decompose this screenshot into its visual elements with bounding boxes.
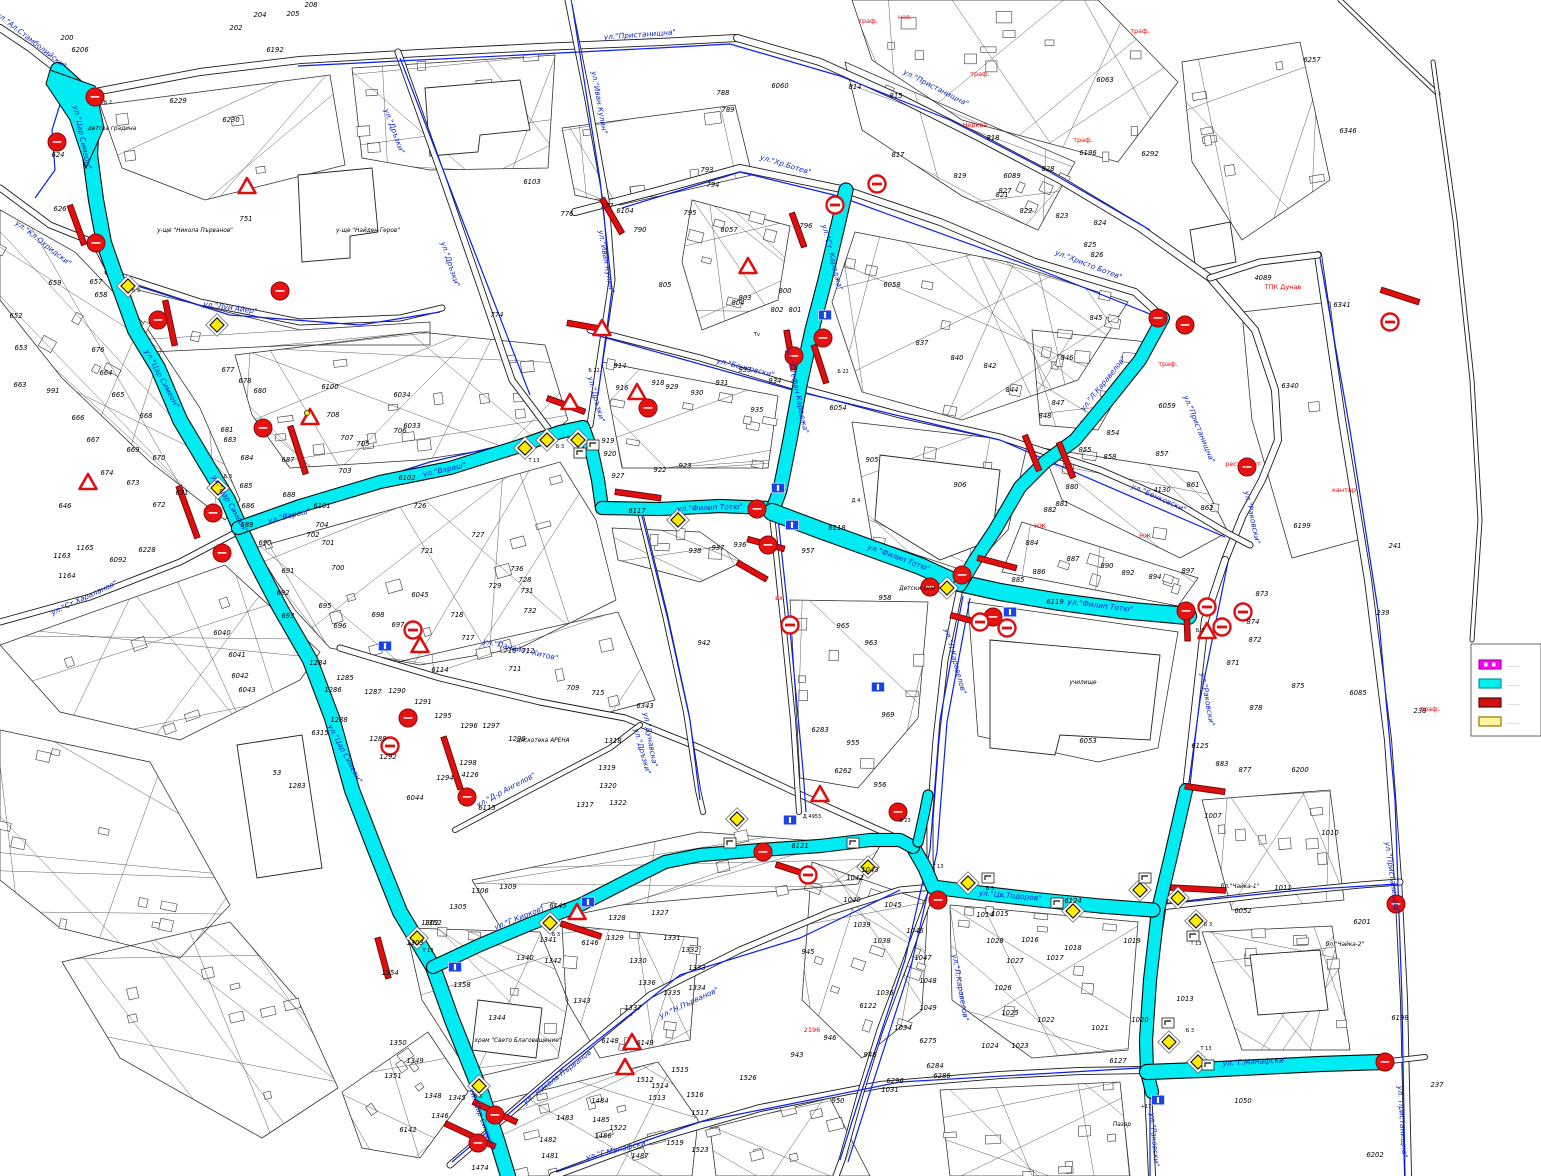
- parcel-number-label: 1513: [648, 1094, 665, 1102]
- parcel-number-label: 1011: [1274, 884, 1291, 892]
- red-circle-marker[interactable]: [149, 311, 167, 329]
- parcel-number-label: 6142: [399, 1126, 416, 1134]
- parcel-number-label: 969: [882, 711, 895, 719]
- yield-triangle-marker[interactable]: [617, 1059, 634, 1074]
- parcel-number-label: 1046: [906, 927, 924, 935]
- parcel-number-label: 796: [800, 222, 814, 230]
- parcel-number-label: 1351: [384, 1072, 401, 1080]
- parcel-number-label: 696: [334, 622, 348, 630]
- parcel-number-label: 958: [879, 594, 893, 602]
- parcel-number-label: 1013: [1176, 995, 1193, 1003]
- parcel-number-label: 1286: [324, 686, 342, 694]
- parcel-number-label: 707: [341, 434, 355, 442]
- parcel-number-label: 237: [1431, 1081, 1445, 1089]
- parcel-number-label: 736: [511, 565, 525, 573]
- parcel-number-label: 721: [421, 547, 434, 555]
- parcel-number-label: 1327: [651, 909, 669, 917]
- place-name-label: Детски дом: [898, 586, 935, 592]
- parcel-number-label: 817: [892, 151, 906, 159]
- road-closure-bar-marker[interactable]: [1380, 287, 1420, 305]
- parcel-number-label: 6122: [859, 1002, 876, 1010]
- traffic-sign-plate[interactable]: [1051, 898, 1063, 908]
- parcel-number-label: 6040: [213, 629, 230, 637]
- parcel-number-label: 927: [612, 472, 626, 480]
- parcel-number-label: 919: [602, 437, 615, 445]
- parcel-number-label: 1342: [544, 957, 561, 965]
- parcel-number-label: 751: [240, 215, 253, 223]
- traffic-sign-plate[interactable]: [587, 440, 599, 450]
- parcel-number-label: 1354: [381, 969, 398, 977]
- parcel-number-label: 1043: [861, 866, 878, 874]
- no-entry-sign-marker[interactable]: [1382, 314, 1399, 331]
- parcel-number-label: 717: [462, 634, 476, 642]
- parcel-number-label: 1042: [846, 874, 863, 882]
- red-circle-marker[interactable]: [87, 234, 105, 252]
- parcel-number-label: 6283: [811, 726, 828, 734]
- parcel-number-label: 718: [451, 611, 465, 619]
- parcel-number-label: 6202: [1366, 1151, 1383, 1159]
- street-name-label: ул."Ал.Стамболийски": [0, 9, 68, 70]
- traffic-sign-plate[interactable]: [1187, 931, 1199, 941]
- parcel-number-label: 1483: [556, 1114, 573, 1122]
- sign-caption-label: Б 3: [1204, 922, 1212, 928]
- red-circle-marker[interactable]: [1149, 309, 1167, 327]
- parcel-number-label: 823: [1056, 212, 1069, 220]
- traffic-sign-plate[interactable]: [1139, 873, 1151, 883]
- parcel-number-label: 1345: [448, 1094, 465, 1102]
- red-circle-marker[interactable]: [748, 500, 766, 518]
- parcel-number-label: 6124: [1064, 897, 1081, 905]
- parcel-number-label: 711: [509, 665, 522, 673]
- sign-caption-label: Т 13: [421, 948, 433, 954]
- parcel-number-label: 697: [392, 621, 406, 629]
- road-closure-bar-marker[interactable]: [977, 555, 1017, 571]
- parcel-number-label: 1317: [576, 801, 594, 809]
- parcel-number-label: 693: [282, 612, 295, 620]
- red-circle-marker[interactable]: [639, 399, 657, 417]
- red-annotation-label: НЖ: [1139, 532, 1151, 540]
- parcel-number-label: 1020: [1131, 1016, 1148, 1024]
- no-entry-sign-marker[interactable]: [827, 197, 844, 214]
- road-closure-bar-marker[interactable]: [560, 921, 602, 939]
- parcel-number-label: 790: [634, 226, 647, 234]
- priority-road-diamond-marker[interactable]: [1158, 1031, 1181, 1054]
- red-circle-marker[interactable]: [254, 419, 272, 437]
- street-name-label: ул."Л.Каравелов": [950, 952, 971, 1021]
- legend-swatch: [1479, 679, 1501, 688]
- red-annotation-label: траф.: [1158, 360, 1178, 368]
- red-circle-marker[interactable]: [271, 282, 289, 300]
- parcel-number-label: 1331: [663, 934, 680, 942]
- parcel-number-label: 922: [654, 466, 667, 474]
- parcel-number-label: 943: [791, 1051, 804, 1059]
- parcel-number-label: 685: [240, 482, 253, 490]
- legend-swatch: [1479, 660, 1501, 669]
- parcel-number-label: 837: [916, 339, 930, 347]
- parcel-number-label: 848: [1039, 412, 1053, 420]
- parcel-number-label: 6103: [523, 178, 540, 186]
- parcel-number-label: 6063: [1096, 76, 1113, 84]
- info-sign-blue-marker[interactable]: [582, 897, 595, 907]
- parcel-number-label: 1163: [53, 552, 70, 560]
- parcel-number-label: 6257: [1303, 56, 1321, 64]
- parcel-number-label: 6058: [883, 281, 901, 289]
- parcel-number-label: 701: [322, 539, 335, 547]
- parcel-number-label: 1333: [688, 964, 705, 972]
- parcel-number-label: 805: [659, 281, 672, 289]
- parcel-number-label: 666: [72, 414, 86, 422]
- priority-road-diamond-marker[interactable]: [726, 808, 749, 831]
- parcel-number-label: 1298: [459, 759, 477, 767]
- red-circle-marker[interactable]: [48, 133, 66, 151]
- yield-triangle-marker[interactable]: [740, 258, 757, 273]
- red-circle-marker[interactable]: [929, 891, 947, 909]
- parcel-number-label: 819: [954, 172, 967, 180]
- parcel-number-label: 6148: [601, 1037, 619, 1045]
- parcel-number-label: 1474: [471, 1164, 488, 1172]
- parcel-number-label: 665: [112, 391, 125, 399]
- parcel-number-label: 6262: [834, 767, 851, 775]
- parcel-number-label: 6341: [1333, 301, 1350, 309]
- parcel-number-label: 1328: [608, 914, 626, 922]
- parcel-number-label: 667: [87, 436, 101, 444]
- parcel-number-label: 1007: [1204, 812, 1222, 820]
- parcel-number-label: 6199: [1293, 522, 1310, 530]
- parcel-number-label: 1028: [986, 937, 1004, 945]
- parcel-number-label: 1284: [309, 659, 326, 667]
- parcel-number-label: 1306: [471, 887, 489, 895]
- place-name-label: дискотека АРЕНА: [515, 738, 569, 744]
- traffic-sign-plate[interactable]: [724, 838, 736, 848]
- parcel-number-label: 1016: [1021, 936, 1039, 944]
- parcel-number-label: 1021: [1091, 1024, 1108, 1032]
- legend-item-label: .........: [1507, 664, 1520, 669]
- parcel-number-label: 6052: [1234, 907, 1251, 915]
- traffic-sign-plate[interactable]: [1162, 1018, 1174, 1028]
- info-sign-blue-marker[interactable]: [1004, 607, 1017, 617]
- no-entry-sign-marker[interactable]: [800, 867, 817, 884]
- red-circle-marker[interactable]: [754, 843, 772, 861]
- parcel-number-label: 1519: [666, 1139, 683, 1147]
- parcel-number-label: 6118: [828, 524, 846, 532]
- info-sign-blue-marker[interactable]: [784, 815, 797, 825]
- yield-triangle-marker[interactable]: [812, 786, 829, 801]
- parcel-number-label: 1024: [981, 1042, 998, 1050]
- parcel-number-label: 704: [316, 521, 329, 529]
- parcel-number-label: 6196: [1079, 149, 1097, 157]
- parcel-number-label: 1294: [436, 774, 453, 782]
- parcel-number-label: 826: [1091, 251, 1105, 259]
- parcel-number-label: 1343: [573, 997, 590, 1005]
- parcel-number-label: 878: [1250, 704, 1264, 712]
- parcel-number-label: 668: [140, 412, 154, 420]
- parcel-number-label: 6100: [321, 383, 338, 391]
- red-annotation-label: нав.: [898, 13, 912, 21]
- parcel-number-label: 858: [1104, 453, 1118, 461]
- red-circle-marker[interactable]: [953, 566, 971, 584]
- info-sign-blue-marker[interactable]: [772, 483, 785, 493]
- parcel-number-label: 729: [489, 582, 502, 590]
- parcel-number-label: 1283: [288, 782, 305, 790]
- red-circle-marker[interactable]: [399, 709, 417, 727]
- parcel-number-label: 1486: [594, 1132, 612, 1140]
- parcel-number-label: 890: [1101, 562, 1114, 570]
- parcel-number-label: 205: [287, 10, 300, 18]
- parcel-number-label: 1320: [599, 782, 616, 790]
- yield-triangle-marker[interactable]: [239, 178, 256, 193]
- parcel-number-label: 1346: [431, 1112, 449, 1120]
- parcel-number-label: 929: [666, 383, 679, 391]
- red-circle-marker[interactable]: [814, 329, 832, 347]
- red-annotation-label: вх.: [775, 594, 785, 602]
- parcel-number-label: 6275: [919, 1037, 936, 1045]
- street-name-label: ул."Раковски": [1198, 671, 1216, 727]
- parcel-number-label: 884: [1026, 539, 1039, 547]
- map-legend: ....................................: [1471, 644, 1541, 736]
- parcel-number-label: 6206: [71, 46, 89, 54]
- parcel-number-label: 664: [100, 369, 113, 377]
- parcel-number-label: 1318: [604, 737, 622, 745]
- street-name-label: ул."Кл.Охридски": [13, 218, 73, 268]
- legend-item-label: .........: [1507, 721, 1520, 726]
- parcel-number-label: 938: [689, 547, 703, 555]
- parcel-number-label: 687: [282, 456, 296, 464]
- traffic-sign-plate[interactable]: [1202, 1060, 1214, 1070]
- parcel-number-label: 239: [1377, 609, 1390, 617]
- red-annotation-label: Черква: [963, 121, 987, 129]
- parcel-number-label: 6057: [720, 226, 738, 234]
- parcel-number-label: 936: [734, 541, 748, 549]
- parcel-number-label: 1289: [369, 735, 386, 743]
- info-sign-blue-marker[interactable]: [819, 310, 832, 320]
- parcel-number-label: 6101: [313, 502, 330, 510]
- parcel-number-label: 881: [1056, 500, 1069, 508]
- parcel-number-label: 6192: [266, 46, 283, 54]
- parcel-number-label: 1049: [919, 1004, 936, 1012]
- parcel-number-label: 6201: [1353, 918, 1370, 926]
- traffic-sign-plate[interactable]: [847, 838, 859, 848]
- parcel-number-label: 6198: [1391, 1014, 1409, 1022]
- parcel-number-label: 916: [616, 384, 630, 392]
- parcel-number-label: 6041: [228, 651, 245, 659]
- parcel-number-label: 905: [866, 456, 879, 464]
- parcel-number-label: 676: [92, 346, 106, 354]
- parcel-number-label: 6230: [222, 116, 239, 124]
- parcel-number-label: 702: [307, 531, 320, 539]
- parcel-number-label: 991: [47, 387, 60, 395]
- parcel-number-label: 732: [524, 607, 537, 615]
- place-name-label: у-ще "Найден Геров": [335, 228, 400, 234]
- parcel-number-label: 1038: [873, 937, 891, 945]
- place-name-label: детска градина: [87, 126, 137, 132]
- parcel-number-label: 885: [1012, 576, 1025, 584]
- parcel-number-label: 918: [652, 379, 666, 387]
- parcel-number-label: 1040: [843, 896, 860, 904]
- info-sign-blue-marker[interactable]: [1152, 1095, 1165, 1105]
- parcel-number-label: 875: [1292, 682, 1305, 690]
- parcel-number-label: 965: [837, 622, 850, 630]
- street-name-label: ул."Цар Симеон": [143, 347, 182, 409]
- parcel-number-label: 728: [519, 576, 533, 584]
- parcel-number-label: 6059: [1158, 402, 1175, 410]
- parcel-number-label: 955: [847, 739, 860, 747]
- red-circle-marker[interactable]: [759, 536, 777, 554]
- info-sign-blue-marker[interactable]: [379, 641, 392, 651]
- parcel-number-label: 855: [1079, 446, 1092, 454]
- parcel-number-label: 624: [52, 151, 65, 159]
- sign-caption-label: +17: [1141, 1104, 1152, 1110]
- no-entry-sign-marker[interactable]: [999, 620, 1016, 637]
- parcel-number-label: 776: [561, 210, 575, 218]
- parcel-number-label: 691: [282, 567, 295, 575]
- place-name-label: бл."Чайка-1": [1221, 884, 1260, 890]
- parcel-number-label: 6125: [1191, 742, 1208, 750]
- parcel-number-label: 1482: [539, 1136, 556, 1144]
- parcel-number-label: 789: [722, 106, 735, 114]
- parcel-number-label: 1015: [991, 910, 1008, 918]
- sign-caption-label: Б 22: [837, 369, 848, 375]
- parcel-number-label: 825: [1084, 241, 1097, 249]
- parcel-number-label: 914: [614, 362, 627, 370]
- yield-triangle-marker[interactable]: [302, 409, 319, 424]
- traffic-sign-plate[interactable]: [982, 873, 994, 883]
- parcel-number-label: 670: [153, 454, 166, 462]
- parcel-number-label: 840: [951, 354, 964, 362]
- parcel-number-label: 683: [224, 436, 237, 444]
- parcel-number-label: 688: [283, 491, 297, 499]
- red-circle-marker[interactable]: [1376, 1053, 1394, 1071]
- parcel-number-label: 1330: [629, 957, 646, 965]
- parcel-number-label: 1484: [591, 1097, 608, 1105]
- parcel-number-label: 887: [1067, 555, 1081, 563]
- parcel-number-label: 935: [751, 406, 764, 414]
- parcel-number-label: 882: [1044, 506, 1057, 514]
- parcel-number-label: 1025: [1001, 1009, 1018, 1017]
- no-entry-sign-marker[interactable]: [972, 614, 989, 631]
- parcel-number-label: 6228: [138, 546, 156, 554]
- parcel-number-label: 1296: [460, 722, 478, 730]
- road-closure-bar-marker[interactable]: [811, 344, 829, 384]
- parcel-number-label: 6042: [231, 672, 248, 680]
- red-circle-marker[interactable]: [213, 544, 231, 562]
- parcel-number-label: 6346: [1339, 127, 1357, 135]
- parcel-number-label: 6286: [933, 1072, 951, 1080]
- priority-road-diamond-marker[interactable]: [206, 314, 229, 337]
- parcel-number-label: 892: [1122, 569, 1135, 577]
- parcel-number-label: 931: [716, 379, 729, 387]
- sign-caption-label: Д 4: [852, 498, 861, 504]
- parcel-number-label: 1290: [388, 687, 405, 695]
- parcel-number-label: 1515: [671, 1066, 688, 1074]
- parcel-number-label: 1031: [881, 1086, 898, 1094]
- info-sign-blue-marker[interactable]: [786, 520, 799, 530]
- parcel-number-label: 847: [1052, 399, 1066, 407]
- place-name-label: училище: [1068, 680, 1097, 686]
- yield-triangle-marker[interactable]: [629, 384, 646, 399]
- red-circle-marker[interactable]: [1176, 316, 1194, 334]
- no-entry-sign-marker[interactable]: [869, 176, 886, 193]
- road-closure-bar-marker[interactable]: [736, 560, 768, 582]
- no-entry-sign-marker[interactable]: [782, 617, 799, 634]
- road-closure-bar-marker[interactable]: [789, 212, 807, 248]
- parcel-number-label: 1019: [1123, 937, 1140, 945]
- parcel-number-label: 1295: [434, 712, 451, 720]
- street-name-label: ул."Луи Айер": [202, 299, 258, 316]
- parcel-number-label: 1297: [482, 722, 500, 730]
- sign-caption-label: Б 23: [899, 818, 910, 824]
- parcel-number-label: 6117: [628, 507, 646, 515]
- parcel-number-label: 6053: [1079, 737, 1096, 745]
- red-circle-marker[interactable]: [458, 788, 476, 806]
- parcel-number-label: 6119: [1046, 598, 1063, 606]
- parcel-number-label: 1022: [1037, 1016, 1054, 1024]
- parcel-number-label: 827: [999, 187, 1013, 195]
- info-sign-blue-marker[interactable]: [449, 962, 462, 972]
- sign-caption-label: Т 13: [527, 458, 539, 464]
- sign-caption-label: Д 4953: [803, 814, 821, 820]
- street-name-label: ул."Панайот Хитов": [481, 636, 559, 662]
- parcel-number-label: 200: [61, 34, 74, 42]
- parcel-number-label: 1050: [1234, 1097, 1251, 1105]
- red-circle-marker[interactable]: [86, 88, 104, 106]
- sign-caption-label: Т 13: [1189, 941, 1201, 947]
- yield-triangle-marker[interactable]: [80, 474, 97, 489]
- parcel-number-label: 698: [372, 611, 386, 619]
- parcel-number-label: 6145: [549, 902, 566, 910]
- no-entry-sign-marker[interactable]: [1199, 599, 1216, 616]
- parcel-number-label: 1485: [592, 1116, 609, 1124]
- parcel-number-label: 1481: [541, 1152, 558, 1160]
- legend-item-label: .........: [1507, 683, 1520, 688]
- parcel-number-label: 877: [1239, 766, 1253, 774]
- parcel-number-label: 886: [1033, 568, 1047, 576]
- parcel-number-label: 204: [254, 11, 267, 19]
- parcel-number-label: 942: [698, 639, 711, 647]
- sign-caption-label: Б 22: [588, 368, 599, 374]
- parcel-number-label: 844: [1006, 386, 1019, 394]
- info-sign-blue-marker[interactable]: [872, 682, 885, 692]
- red-circle-marker[interactable]: [204, 504, 222, 522]
- parcel-number-label: 674: [101, 469, 114, 477]
- no-entry-sign-marker[interactable]: [1214, 619, 1231, 636]
- sign-caption-label: Т 13: [1199, 1046, 1211, 1052]
- red-circle-marker[interactable]: [1177, 602, 1195, 620]
- parcel-number-label: 1340: [516, 954, 533, 962]
- parcel-number-label: 948: [864, 1051, 878, 1059]
- road-closure-bar-marker[interactable]: [615, 489, 661, 501]
- parcel-number-label: 6127: [1109, 1057, 1127, 1065]
- parcel-number-label: 1335: [663, 989, 680, 997]
- map-viewport[interactable]: 2002022042052086206619262306229751624626…: [0, 0, 1541, 1176]
- parcel-number-label: 6284: [926, 1062, 943, 1070]
- priority-road-diamond-marker[interactable]: [1185, 910, 1208, 933]
- parcel-number-label: 658: [95, 291, 109, 299]
- parcel-number-label: 1010: [1321, 829, 1338, 837]
- sign-caption-label: Т 13: [931, 864, 943, 870]
- street-name-label: ул."Пристанищна": [1181, 393, 1217, 464]
- red-annotation-label: 2196: [804, 1026, 821, 1034]
- parcel-number-label: 1348: [424, 1092, 442, 1100]
- parcel-number-label: 1344: [488, 1014, 505, 1022]
- parcel-number-label: 6034: [393, 391, 410, 399]
- traffic-sign-plate[interactable]: [574, 448, 586, 458]
- red-annotation-label: траф.: [1073, 136, 1093, 144]
- parcel-number-label: 923: [679, 462, 692, 470]
- no-entry-sign-marker[interactable]: [405, 622, 422, 639]
- red-annotation-label: траф.: [970, 70, 990, 78]
- parcel-number-label: 828: [1042, 165, 1056, 173]
- city-map-canvas[interactable]: 2002022042052086206619262306229751624626…: [0, 0, 1541, 1176]
